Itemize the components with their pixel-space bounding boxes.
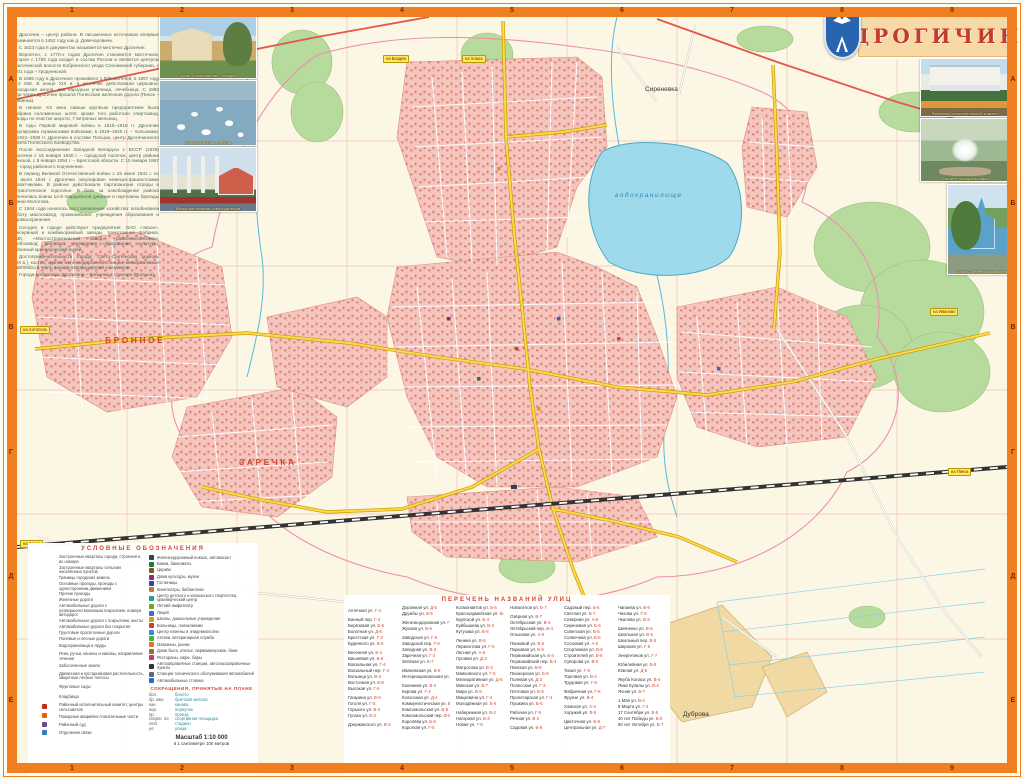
street-index-entry: Широкая ул. Г-6: [618, 644, 666, 650]
street-name: Дорожная ул.: [402, 605, 429, 610]
grid-number: 3: [237, 764, 347, 774]
legend-label: Больницы, поликлиники: [157, 624, 254, 629]
legend-icon: [149, 649, 154, 654]
street-grid-ref: Б-4: [375, 650, 382, 655]
legend-item: Лицей: [149, 611, 254, 616]
street-index-title: ПЕРЕЧЕНЬ НАЗВАНИЙ УЛИЦ: [348, 597, 666, 603]
street-name: Озёрная ул.: [510, 614, 534, 619]
street-name: 1 Мая ул.: [618, 698, 637, 703]
street-index-entry: Высокая ул. Г-5: [348, 686, 396, 692]
legend-item: Фруктовые сады: [32, 682, 144, 691]
grid-number: 6: [567, 764, 677, 774]
street-index-list: Аптечная ул. Г-4 Банный пер. Г-4 Берёзов…: [348, 605, 666, 731]
history-paragraph: В начале XX века самым крупным предприят…: [12, 105, 159, 122]
street-name: Дружбы ул.: [402, 611, 425, 616]
street-grid-ref: В-4: [546, 626, 553, 631]
street-name: Янки Купалы ул.: [618, 683, 651, 688]
street-grid-ref: Г-2: [429, 653, 435, 658]
grid-number: 2: [127, 764, 237, 774]
road-direction-badge: на Иваново: [930, 308, 958, 316]
legend-icon: [42, 653, 47, 658]
street-name: Восточная ул.: [348, 680, 376, 685]
legend-icon: [42, 620, 47, 625]
street-name: Комсомольский пер.: [402, 713, 443, 718]
street-index-entry: Энергетиков ул. Г-7: [618, 653, 666, 659]
street-name: Чехова ул.: [618, 611, 639, 616]
street-name: Королёва ул.: [402, 719, 428, 724]
street-name: Заводской пер.: [402, 641, 432, 646]
street-grid-ref: В-5: [649, 638, 656, 643]
street-name: Ольховая ул.: [510, 632, 536, 637]
grid-number: 2: [127, 6, 237, 16]
street-name: Интернациональная ул.: [402, 674, 450, 679]
legend-item: Автомобильные стоянки: [149, 678, 254, 683]
legend-icon: [149, 562, 154, 567]
street-grid-ref: Б-6: [593, 605, 600, 610]
history-paragraph: В период Великой Отечественной войны с 2…: [12, 171, 159, 205]
legend-icon: [42, 643, 47, 648]
grid-number: 6: [567, 6, 677, 16]
street-grid-ref: В-4: [547, 653, 554, 658]
street-grid-ref: В-3: [643, 617, 650, 622]
street-name: Волынца ул.: [348, 674, 373, 679]
photo-caption: Фонтан в городском парке: [921, 176, 1009, 181]
street-name: 40 лет Победы ул.: [618, 716, 655, 721]
street-name: Вокзальная ул.: [348, 662, 378, 667]
street-name: Энергетиков ул.: [618, 653, 650, 658]
street-index-entry: Садовая ул. Б-6: [510, 725, 558, 731]
street-grid-ref: В-3: [487, 623, 494, 628]
street-index-entry: Гусака ул. Б-3: [348, 713, 396, 719]
street-name: Первомайский пер.: [510, 659, 549, 664]
street-name: Маяковского ул.: [456, 671, 488, 676]
legend-label: Кладбища: [59, 695, 144, 700]
grid-letters-left: АБВГДЕ: [6, 17, 16, 763]
street-name: Дзержинского ул.: [348, 722, 383, 727]
legend-icon: [42, 556, 47, 561]
legend-icon: [149, 630, 154, 635]
street-grid-ref: Д-3: [480, 656, 487, 661]
legend-item: Церкви: [149, 568, 254, 573]
street-name: Мира ул.: [456, 689, 474, 694]
street-grid-ref: Б-6: [536, 725, 543, 730]
legend-swatch: [32, 593, 56, 596]
map-sheet: Сиреневка водохранилище БРОННОЕ ЗАРЕЧКА …: [0, 0, 1024, 780]
legend-item: Дома культуры, музеи: [149, 575, 254, 580]
legend-item: Грунтовые просёлочные дороги: [32, 631, 144, 636]
street-grid-ref: В-4: [638, 698, 645, 703]
legend-label: Гостиницы: [157, 581, 254, 586]
street-name: Весенняя ул.: [348, 650, 374, 655]
street-grid-ref: В-5: [536, 701, 543, 706]
street-name: Пионерская ул.: [510, 671, 541, 676]
street-name: Северная ул.: [564, 617, 591, 622]
street-index-entry: Кутузова ул. В-6: [456, 629, 504, 635]
label-sirenevka: Сиреневка: [645, 86, 678, 93]
history-paragraph: В годы Первой мировой войны в 1915–1918 …: [12, 123, 159, 145]
street-name: Короткая ул.: [402, 725, 427, 730]
legend-label: Полевые и лесные дороги: [59, 637, 144, 642]
street-index-entry: Зелёная ул. Б-7: [402, 659, 450, 665]
street-grid-ref: Г-4: [380, 662, 386, 667]
legend-label: Летний амфитеатр: [157, 604, 254, 609]
street-name: Рабочая ул.: [510, 710, 534, 715]
label-bronnoe: БРОННОЕ: [105, 335, 165, 345]
grid-letter: А: [1008, 17, 1018, 141]
legend-swatch: [32, 556, 56, 563]
legend-icon: [149, 555, 154, 560]
legend-icon: [42, 593, 47, 598]
street-grid-ref: Г-4: [374, 617, 380, 622]
grid-letter: Б: [1008, 141, 1018, 265]
road-direction-badge: на Бездеж: [383, 55, 409, 63]
street-index-entry: Фрунзе ул. В-4: [564, 695, 612, 701]
street-index-entry: Чкалова ул. В-3: [618, 617, 666, 623]
legend-item: Больницы, поликлиники: [149, 623, 254, 628]
grid-letters-right: АБВГДЕ: [1008, 17, 1018, 763]
legend-icon: [149, 617, 154, 622]
legend-swatch: [32, 653, 56, 661]
legend-icon: [149, 655, 154, 660]
street-index-entry: Новосёлов ул. Б-7: [510, 605, 558, 611]
legend-swatch: [32, 585, 56, 589]
legend-item: Кладбища: [32, 693, 144, 702]
street-name: Коммунистическая ул.: [402, 701, 447, 706]
street-name: Железнодорожная ул.: [402, 620, 446, 625]
photo-swans: Водохранилище. Лебеди: [159, 80, 257, 146]
street-name: Берёзовая ул.: [348, 623, 376, 628]
street-grid-ref: В-6: [377, 641, 384, 646]
scale-block: Масштаб 1:10 000 в 1 сантиметре 100 метр…: [149, 735, 254, 746]
street-name: Комсомольская ул.: [402, 707, 440, 712]
street-name: Набережная ул.: [456, 710, 488, 715]
legend-item: Застроенные кварталы города, строения и …: [32, 555, 144, 564]
legend-item: Летний амфитеатр: [149, 604, 254, 609]
street-name: Цветочная ул.: [564, 719, 592, 724]
legend-item: Водохранилища и пруды: [32, 643, 144, 651]
street-grid-ref: Г-4: [375, 608, 381, 613]
street-name: Почтовая ул.: [510, 689, 536, 694]
street-grid-ref: Г-4: [424, 689, 430, 694]
street-index-entry: Трудовая ул. Г-5: [564, 680, 612, 686]
legend-item: Древесная и кустарниковая растительность…: [32, 672, 144, 681]
street-grid-ref: В-4: [448, 701, 450, 706]
street-name: Молодёжная ул.: [456, 701, 489, 706]
legend-swatch: [32, 730, 56, 737]
street-grid-ref: Б-6: [594, 623, 601, 628]
grid-number: 8: [787, 764, 897, 774]
legend-icon: [149, 604, 154, 609]
street-grid-ref: Д-6: [496, 677, 503, 682]
grid-number: 5: [457, 764, 567, 774]
street-grid-ref: Б-7: [589, 611, 596, 616]
street-grid-ref: В-6: [596, 647, 603, 652]
history-paragraph: Сегодня в городе действуют предприятия: …: [12, 225, 159, 253]
legend-icon: [149, 581, 154, 586]
legend-item: Основные проезды, проезды с односторонни…: [32, 582, 144, 591]
street-grid-ref: Г-5: [489, 671, 495, 676]
street-grid-ref: В-2: [489, 710, 496, 715]
grid-letter: Д: [6, 514, 16, 638]
grid-letter: Д: [1008, 514, 1018, 638]
street-index-box: ПЕРЕЧЕНЬ НАЗВАНИЙ УЛИЦ Аптечная ул. Г-4 …: [344, 595, 670, 778]
street-index-entry: Будённого ул. В-6: [348, 641, 396, 647]
street-name: Октябрьский пер.: [510, 626, 545, 631]
legend-label: Реки, ручьи, каналы и канавы, направлени…: [59, 652, 144, 661]
photo-blue-church: Свято-Сретенская церковь: [947, 184, 1016, 275]
street-name: Чапаева ул.: [618, 605, 642, 610]
scale-note: в 1 сантиметре 100 метров: [149, 741, 254, 746]
legend-item: Центр детского и юношеского творчества, …: [149, 594, 254, 603]
street-name: Садовый пер.: [564, 605, 592, 610]
street-name: Мицкевича ул.: [456, 695, 485, 700]
grid-number: 7: [677, 6, 787, 16]
legend-swatch: [32, 620, 56, 623]
street-grid-ref: Г-6: [434, 641, 440, 646]
street-grid-ref: Б-6: [377, 656, 384, 661]
street-grid-ref: Д-6: [375, 629, 382, 634]
street-grid-ref: Б-7: [540, 605, 547, 610]
street-index-entry: Луговая ул. Д-3: [456, 656, 504, 662]
street-grid-ref: А-6: [592, 641, 599, 646]
road-direction-badge: на Антополь: [20, 326, 50, 334]
street-grid-ref: Д-5: [430, 605, 437, 610]
street-grid-ref: В-8: [377, 680, 384, 685]
grid-letter: Е: [6, 639, 16, 763]
street-grid-ref: Г-4: [383, 668, 389, 673]
legend-icon: [149, 664, 154, 669]
legend-swatch: [32, 609, 56, 612]
grid-numbers-top: 123456789: [17, 6, 1007, 16]
legend-label: Рестораны, кафе, бары: [157, 656, 254, 661]
street-name: Пинская ул.: [510, 665, 534, 670]
street-grid-ref: В-4: [544, 620, 551, 625]
street-grid-ref: В-5: [479, 638, 486, 643]
street-grid-ref: В-4: [373, 707, 380, 712]
street-index-entry: Дзержинского ул. В-4: [348, 722, 396, 728]
street-name: Первомайская ул.: [510, 653, 546, 658]
legend-left-column: Застроенные кварталы города, строения и …: [32, 554, 144, 746]
street-name: Ивановская ул.: [402, 668, 433, 673]
arms-derrick-icon: [836, 36, 848, 52]
legend-item: Железные дороги: [32, 598, 144, 603]
street-grid-ref: В-2: [532, 716, 539, 721]
street-index-entry: Жукова ул. В-6: [402, 626, 450, 632]
street-grid-ref: Б-5: [542, 671, 549, 676]
legend-icon-list: Железнодорожный вокзал, автовокзал Банки…: [149, 555, 254, 683]
street-grid-ref: В-2: [429, 647, 436, 652]
street-grid-ref: В-4: [384, 722, 391, 727]
grid-number: 3: [237, 6, 347, 16]
legend-label: Банки, банкоматы: [157, 562, 254, 567]
legend-icon: [42, 722, 47, 727]
legend-item: Отделения связи: [32, 730, 144, 737]
street-grid-ref: В-7: [535, 614, 542, 619]
legend-swatch: [32, 662, 56, 670]
legend-label: Водохранилища и пруды: [59, 644, 144, 649]
street-grid-ref: В-3: [374, 674, 381, 679]
abbreviation-row: ул. улица: [149, 727, 254, 732]
street-name: Широкая ул.: [618, 644, 643, 649]
legend-item: Районный исполнительный комитет, центры …: [32, 703, 144, 712]
street-name: Кутузова ул.: [456, 629, 481, 634]
street-name: Новая ул.: [456, 722, 475, 727]
grid-letter: Б: [6, 141, 16, 265]
legend-label: Основные проезды, проезды с односторонни…: [59, 582, 144, 591]
legend-item: Рестораны, кафе, бары: [149, 655, 254, 660]
legend-icon: [149, 568, 154, 573]
legend-item: Аптеки, ветеринарная служба: [149, 636, 254, 641]
legend-icon: [42, 567, 47, 572]
reservoir-lake: [589, 142, 742, 275]
street-name: Заводская ул.: [402, 635, 430, 640]
street-grid-ref: Д-4: [431, 695, 438, 700]
photo-caption: Свято-Сретенская церковь: [948, 269, 1015, 274]
grid-letter: В: [6, 266, 16, 390]
street-name: Школьный пер.: [618, 638, 648, 643]
legend-label: Автозаправочные станции, автогазозаправо…: [157, 662, 254, 671]
street-name: Вокзальный пер.: [348, 668, 382, 673]
legend-label: Церкви: [157, 568, 254, 573]
street-grid-ref: В-5: [475, 689, 482, 694]
legend-label: Магазины, рынки: [157, 643, 254, 648]
street-name: Садовая ул.: [510, 725, 534, 730]
street-grid-ref: В-4: [587, 695, 594, 700]
street-name: Школьная ул.: [618, 632, 645, 637]
street-name: Хоружей ул.: [564, 710, 588, 715]
grid-letter: В: [1008, 266, 1018, 390]
legend-icon: [42, 662, 47, 667]
history-paragraph: Вероятно, с 1770-х годов Дрогичин станов…: [12, 52, 159, 74]
street-grid-ref: В-5: [646, 632, 653, 637]
street-name: Мелиоративная ул.: [456, 677, 495, 682]
street-grid-ref: Б-5: [537, 647, 544, 652]
legend-icon: [42, 682, 47, 687]
street-name: Сосновая ул.: [564, 641, 590, 646]
street-index-entry: Ясная ул. Б-7: [618, 689, 666, 695]
coat-of-arms: [824, 9, 861, 59]
street-grid-ref: В-5: [646, 626, 653, 631]
street-grid-ref: В-5: [593, 629, 600, 634]
street-name: Полесская ул.: [510, 683, 538, 688]
street-grid-ref: В-5: [537, 641, 544, 646]
legend-label: Автомобильные дороги без покрытия: [59, 625, 144, 630]
street-name: Юбилейная ул.: [618, 662, 649, 667]
street-grid-ref: Б-7: [639, 689, 646, 694]
street-grid-ref: Б-4: [482, 617, 489, 622]
street-name: 17 Сентября ул.: [618, 710, 650, 715]
street-name: Гагарина ул.: [348, 695, 373, 700]
history-text-block: Дрогичин – центр района. В письменных ис…: [12, 32, 159, 279]
street-grid-ref: Д-2: [535, 677, 542, 682]
grid-number: 9: [897, 6, 1007, 16]
street-grid-ref: В-5: [590, 710, 597, 715]
street-grid-ref: В-6: [591, 659, 598, 664]
street-grid-ref: В-4: [652, 683, 659, 688]
street-name: 8 Марта ул.: [618, 704, 641, 709]
legend-item: Районный суд: [32, 722, 144, 729]
legend-label: Лицей: [157, 611, 254, 616]
street-name: Сиреневая ул.: [564, 623, 593, 628]
street-grid-ref: Д-5: [640, 668, 647, 673]
street-name: Центральная ул.: [564, 725, 597, 730]
street-grid-ref: Г-3: [539, 683, 545, 688]
street-grid-ref: В-3: [486, 665, 493, 670]
legend-swatch: [32, 682, 56, 691]
label-dubrova: Дуброва: [683, 710, 709, 718]
legend-item: Пожарные аварийно-спасательные части: [32, 713, 144, 720]
abbreviations-list: бол. болото бр. мог. братская могила кан…: [149, 693, 254, 732]
legend-item: Железнодорожный вокзал, автовокзал: [149, 555, 254, 560]
street-index-entry: Дружбы ул. Б-5: [402, 611, 450, 617]
street-name: Минская ул.: [456, 683, 480, 688]
street-grid-ref: Г-4: [642, 704, 648, 709]
grid-numbers-bottom: 123456789: [17, 764, 1007, 774]
legend-icon: [149, 672, 154, 677]
street-grid-ref: Г-5: [640, 611, 646, 616]
street-name: Южная ул.: [618, 668, 639, 673]
legend-label: Автомобильные дороги с усовершенствованн…: [59, 604, 144, 618]
legend-label: Застроенные кварталы сельских населённых…: [59, 566, 144, 575]
street-grid-ref: Б-5: [490, 701, 497, 706]
street-grid-ref: Г-5: [488, 644, 494, 649]
grid-number: 5: [457, 6, 567, 16]
street-grid-ref: Д-7: [599, 725, 606, 730]
legend-label: Центр гигиены и эпидемиологии: [157, 630, 254, 635]
legend-icon: [149, 587, 154, 592]
city-title: ДРОГИЧИН: [852, 24, 1023, 48]
abbreviation-meaning: улица: [175, 727, 254, 732]
street-index-entry: Интернациональная ул. В-5: [402, 674, 450, 680]
road-direction-badge: на Хомск: [462, 55, 486, 63]
street-index-entry: Аптечная ул. Г-4: [348, 608, 396, 614]
abbreviations-title: СОКРАЩЕНИЯ, ПРИНЯТЫЕ НА ПЛАНЕ: [149, 686, 254, 691]
history-paragraph: В 1886 году в Дрогичине проживало 1 505 …: [12, 76, 159, 104]
street-grid-ref: Б-6: [429, 719, 436, 724]
street-grid-ref: Г-5: [369, 701, 375, 706]
legend-item: Реки, ручьи, каналы и канавы, направлени…: [32, 652, 144, 661]
legend-label: Грунтовые просёлочные дороги: [59, 631, 144, 636]
legend-icon: [149, 623, 154, 628]
street-name: Солнечная ул.: [564, 635, 593, 640]
abbreviation: ул.: [149, 727, 175, 732]
street-name: Аптечная ул.: [348, 608, 374, 613]
street-name: Зелёная ул.: [402, 659, 426, 664]
street-grid-ref: А-6: [479, 650, 486, 655]
street-name: Чкалова ул.: [618, 617, 642, 622]
street-name: Суворова ул.: [564, 659, 590, 664]
street-grid-ref: Б-5: [377, 623, 384, 628]
street-grid-ref: В-4: [430, 683, 437, 688]
street-grid-ref: Г-6: [477, 722, 483, 727]
street-index-entry: Южная ул. Д-5: [618, 668, 666, 674]
legend-label: Районный исполнительный комитет, центры …: [59, 703, 144, 712]
street-name: Якуба Коласа ул.: [618, 677, 652, 682]
legend-swatch: [32, 643, 56, 651]
street-name: Спортивная ул.: [564, 647, 595, 652]
label-reservoir: водохранилище: [615, 191, 683, 199]
street-grid-ref: В-8: [535, 665, 542, 670]
street-grid-ref: В-5: [651, 710, 658, 715]
grid-number: 7: [677, 764, 787, 774]
street-name: Ленина ул.: [456, 638, 478, 643]
legend-icon: [149, 575, 154, 580]
label-zarechka: ЗАРЕЧКА: [239, 457, 297, 467]
street-name: Пролетарская ул.: [510, 695, 545, 700]
street-index-entry: Молодёжная ул. Б-5: [456, 701, 504, 707]
grid-number: 1: [17, 6, 127, 16]
street-grid-ref: В-4: [654, 677, 661, 682]
